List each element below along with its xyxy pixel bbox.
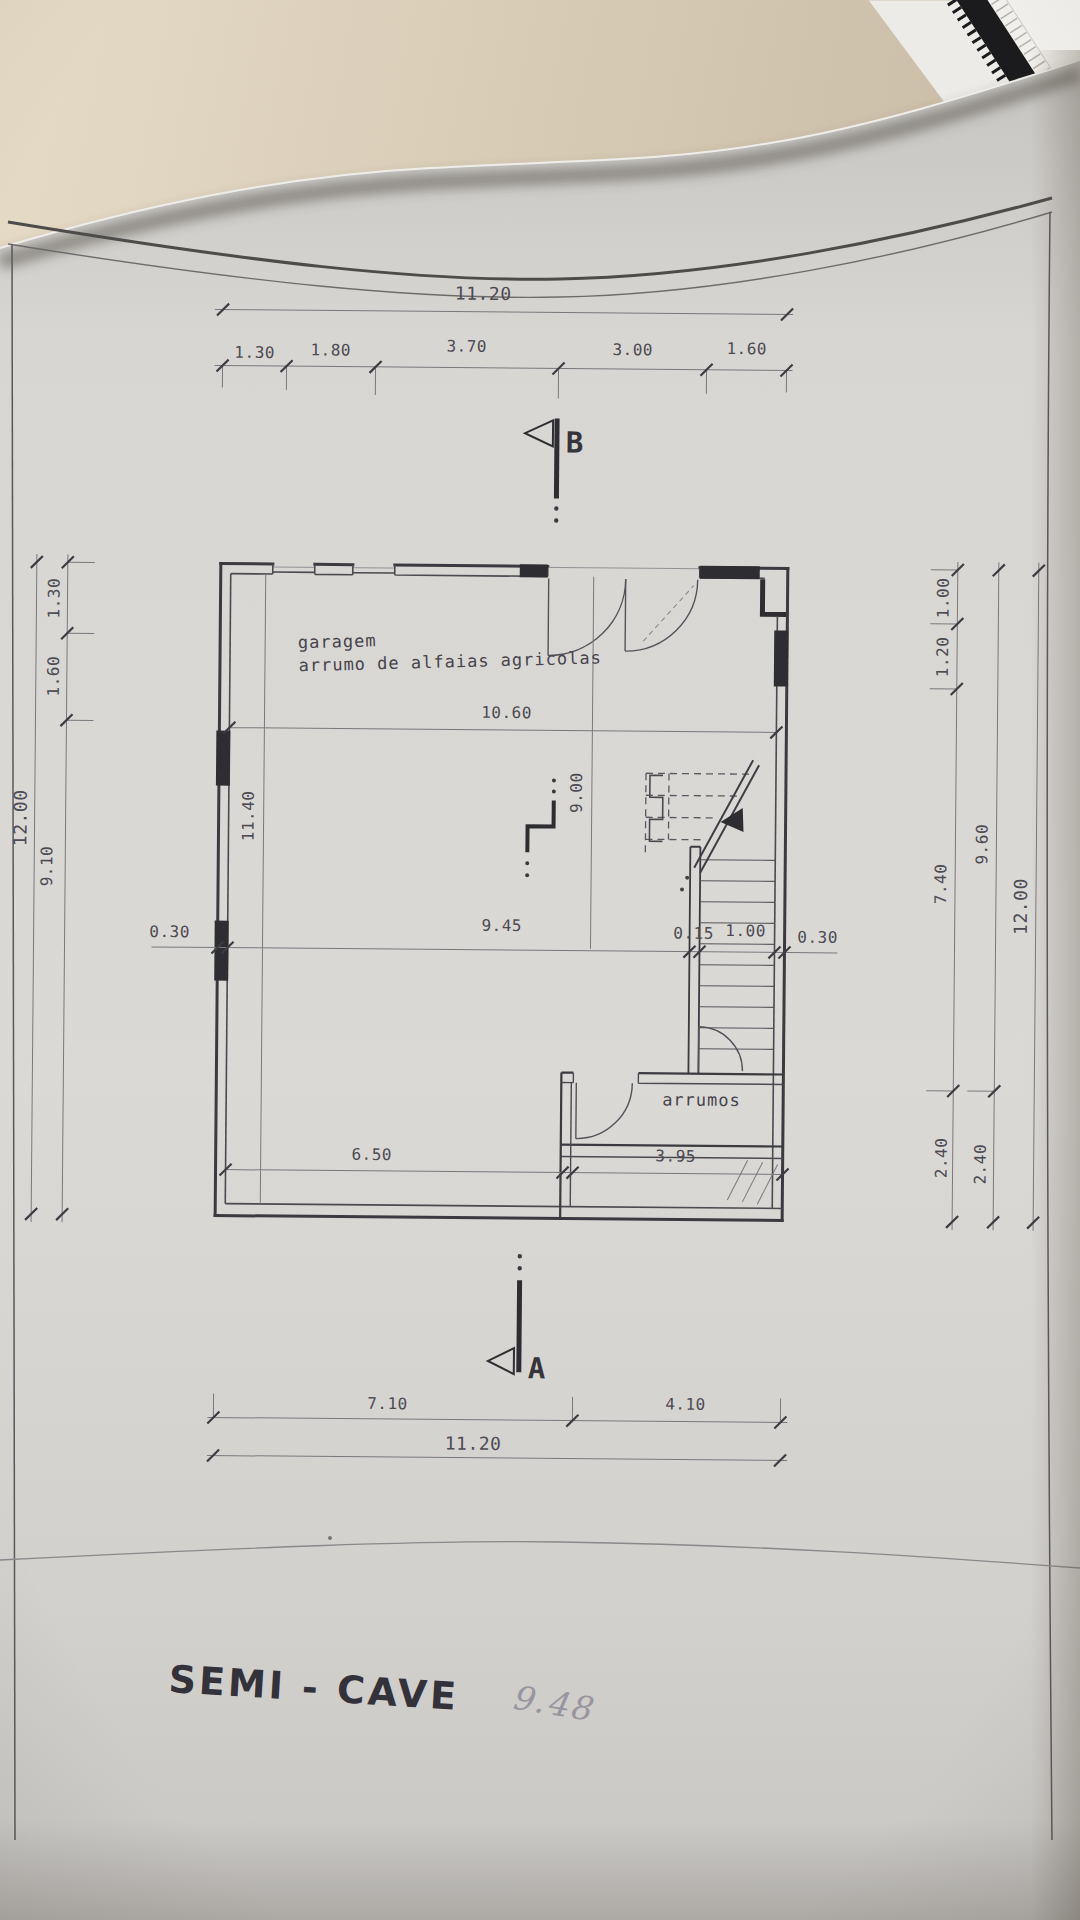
photo-canvas: B A 11.20 1.30 1.80 3. bbox=[0, 0, 1080, 1920]
scanned-floor-plan-photo: B A 11.20 1.30 1.80 3. bbox=[0, 0, 1080, 1920]
photo-vignette bbox=[0, 0, 1080, 1920]
